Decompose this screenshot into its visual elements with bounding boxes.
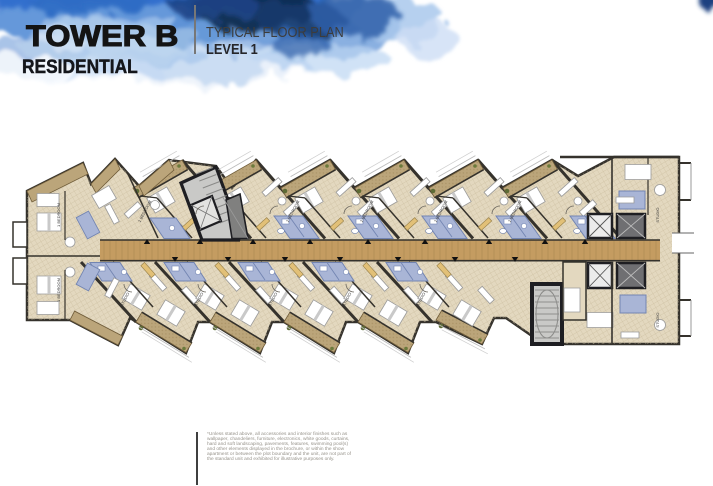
- svg-text:STUDIO: STUDIO: [655, 207, 660, 222]
- svg-text:STUDIO: STUDIO: [655, 312, 660, 327]
- svg-text:1 BEDROOM: 1 BEDROOM: [56, 203, 61, 227]
- svg-text:1 BEDROOM: 1 BEDROOM: [56, 278, 61, 302]
